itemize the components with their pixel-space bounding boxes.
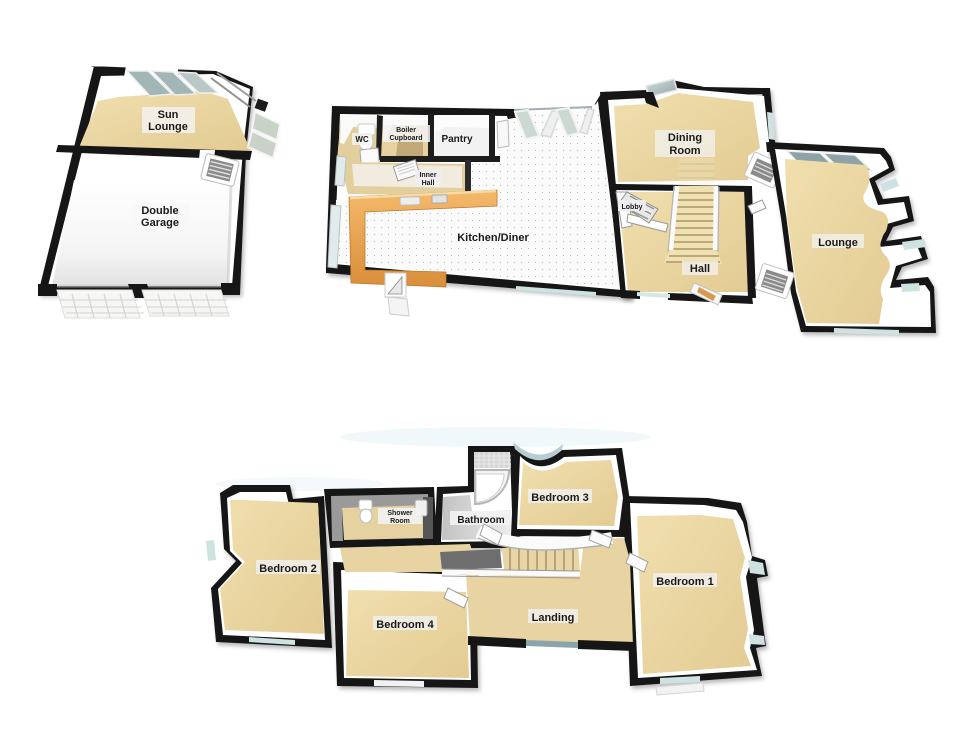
svg-text:Bedroom 2: Bedroom 2	[259, 563, 316, 575]
svg-text:Landing: Landing	[532, 612, 575, 624]
svg-text:Kitchen/Diner: Kitchen/Diner	[457, 232, 529, 244]
svg-text:Room: Room	[669, 145, 700, 157]
svg-text:Room: Room	[390, 518, 410, 525]
svg-text:Bedroom 1: Bedroom 1	[656, 576, 713, 588]
svg-text:Lounge: Lounge	[818, 237, 858, 249]
svg-text:Pantry: Pantry	[441, 134, 473, 145]
svg-text:Lounge: Lounge	[148, 121, 188, 133]
svg-text:Boiler: Boiler	[396, 127, 416, 134]
svg-text:Double: Double	[141, 205, 178, 217]
svg-text:Bedroom 3: Bedroom 3	[531, 492, 588, 504]
svg-text:Cupboard: Cupboard	[389, 135, 422, 142]
svg-text:WC: WC	[355, 135, 369, 144]
svg-text:Dining: Dining	[668, 132, 702, 144]
svg-text:Shower: Shower	[387, 510, 413, 517]
svg-text:Bedroom 4: Bedroom 4	[376, 619, 434, 631]
svg-text:Hall: Hall	[690, 263, 710, 275]
svg-text:Garage: Garage	[141, 217, 179, 229]
svg-text:Lobby: Lobby	[622, 204, 643, 211]
svg-text:Hall: Hall	[422, 180, 435, 187]
svg-text:Inner: Inner	[419, 172, 436, 179]
svg-text:Bathroom: Bathroom	[457, 515, 504, 526]
svg-text:Sun: Sun	[158, 109, 179, 121]
